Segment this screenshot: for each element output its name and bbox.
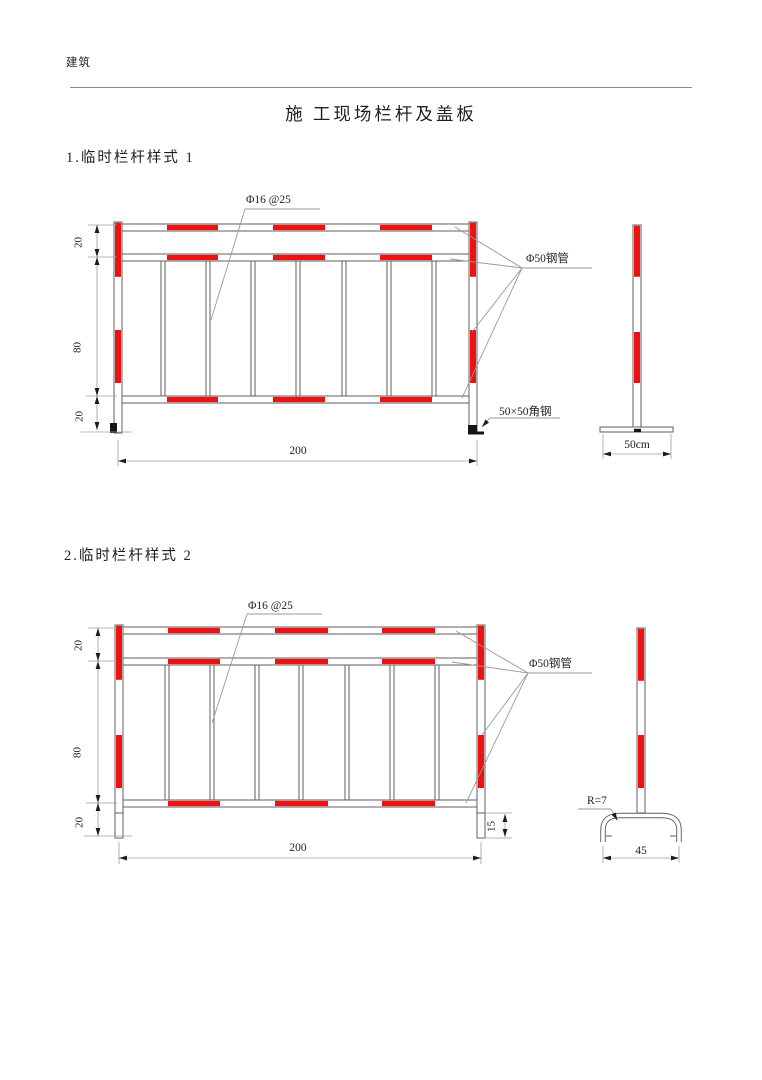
fence1-side-post	[633, 225, 641, 427]
fence2-dim-middle: 80	[72, 743, 85, 763]
fence1-angle-steel-label: 50×50角钢	[499, 403, 552, 419]
fence1-side-base-dim: 50cm	[616, 439, 658, 451]
fence2-side-view	[578, 628, 679, 863]
fence2-radius-label: R=7	[587, 795, 607, 807]
fence1-top-rail	[117, 224, 477, 231]
fence2-side-post	[637, 628, 645, 813]
drawing-linework	[0, 0, 762, 1080]
fence1-angle-feet	[110, 423, 484, 435]
fence2-side-base-dim: 45	[621, 845, 661, 857]
document-page: 建筑 施 工现场栏杆及盖板 1.临时栏杆样式 1 2.临时栏杆样式 2	[0, 0, 762, 1080]
fence1-left-post	[114, 222, 122, 433]
fence1-dim-middle: 80	[72, 338, 85, 358]
fence2-left-post	[115, 625, 123, 838]
fence2-middle-rail	[117, 658, 483, 665]
fence2-leaders	[212, 614, 592, 803]
fence1-leaders	[211, 209, 592, 427]
fence2-pipe-label: Φ50钢管	[529, 655, 572, 671]
fence1-front-view	[80, 209, 592, 466]
fence1-pipe-label: Φ50钢管	[526, 250, 569, 266]
fence1-side-view	[600, 225, 673, 459]
fence2-dim-bottom: 20	[74, 813, 87, 833]
fence1-rebar-label: Φ16 @25	[246, 194, 291, 206]
fence2-dim-top: 20	[73, 636, 86, 656]
fence2-arched-base	[603, 816, 679, 843]
fence1-pickets	[161, 261, 436, 396]
fence2-bottom-rail	[117, 800, 483, 807]
fence2-pickets	[165, 665, 439, 800]
fence2-front-view	[84, 614, 592, 864]
fence2-top-rail	[117, 627, 483, 634]
fence2-dim-width: 200	[278, 842, 318, 854]
fence1-bottom-rail	[117, 396, 477, 403]
fence1-dim-bottom: 20	[74, 407, 87, 427]
fence2-rebar-label: Φ16 @25	[248, 600, 293, 612]
fence1-middle-rail	[117, 254, 477, 261]
fence1-dim-top: 20	[73, 233, 86, 253]
fence1-dim-width: 200	[278, 445, 318, 457]
fence2-dim-leg: 15	[486, 817, 499, 837]
fence2-right-post	[477, 625, 485, 838]
